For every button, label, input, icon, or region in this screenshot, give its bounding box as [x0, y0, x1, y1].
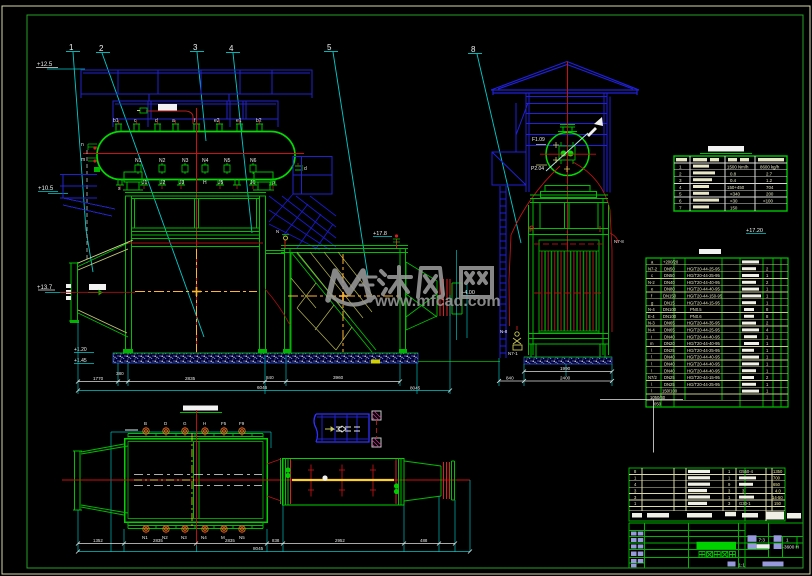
svg-text:N5: N5: [239, 535, 245, 540]
svg-text:N2: N2: [162, 535, 168, 540]
svg-text:650: 650: [773, 482, 781, 487]
svg-text:DN40: DN40: [664, 355, 675, 360]
svg-text:N7-8: N7-8: [614, 239, 624, 244]
svg-text:HG/T20-44-40-95: HG/T20-44-40-95: [687, 341, 720, 346]
svg-text:N-4: N-4: [648, 328, 655, 333]
svg-text:5: 5: [327, 43, 332, 52]
svg-text:DN40: DN40: [664, 280, 675, 285]
svg-text:488: 488: [420, 538, 428, 543]
svg-text:7: 7: [679, 205, 682, 210]
svg-text:B: B: [144, 421, 147, 426]
svg-text:DN65: DN65: [664, 321, 675, 326]
svg-text:8045: 8045: [253, 546, 264, 551]
svg-text:DN25: DN25: [664, 348, 675, 353]
svg-text:E-4: E-4: [648, 314, 655, 319]
svg-text:840: 840: [266, 375, 274, 380]
svg-text:3: 3: [679, 178, 682, 183]
svg-text:G550-4: G550-4: [739, 469, 754, 474]
svg-text:1990: 1990: [560, 366, 571, 371]
svg-text:<30: <30: [730, 199, 738, 204]
svg-text:+1.20: +1.20: [74, 347, 87, 353]
svg-text:HG/T20-44-40-95: HG/T20-44-40-95: [687, 368, 720, 373]
svg-text:8600 kg/h: 8600 kg/h: [760, 165, 780, 170]
svg-text:DN40: DN40: [664, 334, 675, 339]
svg-text:+200/20: +200/20: [663, 260, 679, 265]
svg-text:2835: 2835: [153, 538, 163, 543]
svg-text:0.8: 0.8: [730, 171, 737, 176]
svg-text:1: 1: [679, 165, 682, 170]
svg-text:DN65: DN65: [664, 328, 675, 333]
svg-text:150: 150: [730, 205, 738, 210]
svg-text:N7-1: N7-1: [508, 351, 518, 356]
svg-text:HG/T20-44-25-95: HG/T20-44-25-95: [687, 273, 720, 278]
svg-text:4: 4: [679, 185, 682, 190]
svg-text:3960: 3960: [333, 375, 344, 380]
svg-text:2: 2: [99, 44, 104, 53]
svg-text:HG/T20-44-40-95: HG/T20-44-40-95: [687, 280, 720, 285]
svg-text:N: N: [276, 229, 279, 234]
svg-text:200: 200: [766, 192, 774, 197]
svg-text:840: 840: [506, 376, 514, 381]
svg-text:2: 2: [679, 171, 682, 176]
svg-text:N1: N1: [142, 535, 148, 540]
svg-text:0.4: 0.4: [730, 178, 737, 183]
svg-text:6: 6: [679, 199, 682, 204]
svg-text:J2: J2: [160, 180, 166, 186]
svg-text:m: m: [81, 157, 85, 163]
svg-text:N-4: N-4: [648, 307, 655, 312]
svg-text:HG/T20-44-15-95: HG/T20-44-15-95: [687, 375, 720, 380]
svg-text:7:3: 7:3: [759, 538, 766, 543]
svg-text:1.2: 1.2: [766, 178, 773, 183]
svg-text:b1: b1: [113, 118, 119, 124]
svg-text:www.mfcad.com: www.mfcad.com: [374, 293, 501, 310]
svg-text:P2.04: P2.04: [531, 166, 544, 172]
svg-text:HG/T20-44-25-95: HG/T20-44-25-95: [687, 382, 720, 387]
svg-text:2835: 2835: [225, 538, 235, 543]
svg-text:HG/T20-44-40-95: HG/T20-44-40-95: [687, 334, 720, 339]
svg-text:2835: 2835: [185, 376, 196, 381]
svg-text:4.0: 4.0: [775, 488, 781, 493]
svg-text:5: 5: [679, 192, 682, 197]
svg-text:1770: 1770: [93, 376, 104, 381]
svg-text:DN50: DN50: [664, 273, 675, 278]
svg-text:N-8: N-8: [500, 329, 508, 334]
svg-text:H: H: [203, 421, 206, 426]
svg-text:n: n: [81, 142, 84, 148]
svg-text:HG/T20-44-25-95: HG/T20-44-25-95: [687, 328, 720, 333]
svg-text:2952: 2952: [335, 538, 345, 543]
svg-text:J1: J1: [142, 180, 148, 186]
svg-text:DN40: DN40: [664, 368, 675, 373]
svg-text:e1: e1: [236, 118, 242, 124]
svg-text:HG/T20-44-40-95: HG/T20-44-40-95: [687, 362, 720, 367]
svg-text:HG/T20-44-150-95: HG/T20-44-150-95: [687, 294, 723, 299]
svg-text:N-3: N-3: [648, 321, 655, 326]
svg-text:DN100: DN100: [663, 314, 677, 319]
svg-text:704: 704: [766, 185, 774, 190]
svg-text:J3: J3: [179, 180, 185, 186]
svg-text:380: 380: [116, 371, 124, 376]
svg-text:HG/T20-44-25-95: HG/T20-44-25-95: [687, 348, 720, 353]
svg-text:b2: b2: [256, 118, 262, 124]
svg-text:<100: <100: [763, 199, 773, 204]
svg-text:DN20: DN20: [664, 341, 675, 346]
svg-text:d: d: [304, 166, 307, 172]
svg-text:DN80: DN80: [664, 287, 675, 292]
svg-text:J6: J6: [250, 180, 256, 186]
svg-text:2.7: 2.7: [766, 171, 773, 176]
svg-text:700: 700: [773, 476, 781, 481]
svg-text:N7/2: N7/2: [648, 375, 658, 380]
svg-text:14-50: 14-50: [772, 495, 783, 500]
svg-text:a: a: [172, 118, 175, 124]
svg-text:DN100: DN100: [663, 307, 677, 312]
svg-text:e2: e2: [214, 118, 220, 124]
svg-text:6046: 6046: [257, 385, 268, 390]
svg-text:1: 1: [786, 538, 789, 543]
svg-text:HG/T20-44-40-95: HG/T20-44-40-95: [687, 287, 720, 292]
svg-text:F5: F5: [221, 421, 227, 426]
svg-text:G30-1: G30-1: [739, 501, 751, 506]
svg-text:<340: <340: [730, 192, 740, 197]
svg-text:050: 050: [654, 402, 662, 407]
svg-text:N7-2: N7-2: [648, 266, 658, 271]
svg-text:1350: 1350: [773, 469, 783, 474]
svg-text:c: c: [651, 273, 653, 278]
svg-text:3: 3: [193, 43, 198, 52]
svg-text:8: 8: [471, 45, 476, 54]
svg-text:N3: N3: [181, 535, 187, 540]
svg-text:PN0.6: PN0.6: [690, 314, 702, 319]
svg-text:N4: N4: [201, 535, 207, 540]
svg-text:1: 1: [69, 43, 74, 52]
svg-text:DN150: DN150: [663, 294, 677, 299]
svg-text:DN15: DN15: [664, 300, 675, 305]
svg-text:H: H: [203, 180, 207, 186]
svg-text:8045: 8045: [410, 386, 421, 391]
svg-text:1352: 1352: [93, 538, 103, 543]
svg-text:1500 Nm/h: 1500 Nm/h: [727, 165, 749, 170]
svg-text:J5: J5: [218, 180, 224, 186]
svg-text:HG/T20-44-15-95: HG/T20-44-15-95: [687, 300, 720, 305]
svg-text:838: 838: [272, 538, 280, 543]
svg-text:+1.45: +1.45: [74, 358, 87, 364]
svg-text:HG/T20-44-25-95: HG/T20-44-25-95: [687, 266, 720, 271]
svg-text:DN40: DN40: [664, 362, 675, 367]
svg-text:F9: F9: [239, 421, 245, 426]
svg-text:F1.09: F1.09: [532, 137, 545, 143]
svg-text:-3600 H: -3600 H: [783, 545, 799, 550]
svg-text:DN50: DN50: [664, 266, 675, 271]
svg-text:1:1: 1:1: [739, 563, 746, 568]
svg-text:HG/T20-44-35-95: HG/T20-44-35-95: [687, 321, 720, 326]
svg-text:4: 4: [229, 44, 234, 53]
svg-text:i: i: [651, 334, 652, 339]
svg-text:DN25: DN25: [664, 382, 675, 387]
svg-text:DN25: DN25: [664, 375, 675, 380]
svg-text:N-2: N-2: [648, 280, 655, 285]
svg-text:PN0.5: PN0.5: [690, 307, 702, 312]
svg-text:2400: 2400: [560, 376, 571, 381]
svg-text:HG/T20-44-40-95: HG/T20-44-40-95: [687, 355, 720, 360]
svg-text:150+450: 150+450: [727, 185, 745, 190]
svg-text:m: m: [650, 341, 654, 346]
svg-text:G: G: [183, 421, 187, 426]
svg-text:150: 150: [774, 501, 782, 506]
svg-text:150/100: 150/100: [662, 389, 678, 394]
